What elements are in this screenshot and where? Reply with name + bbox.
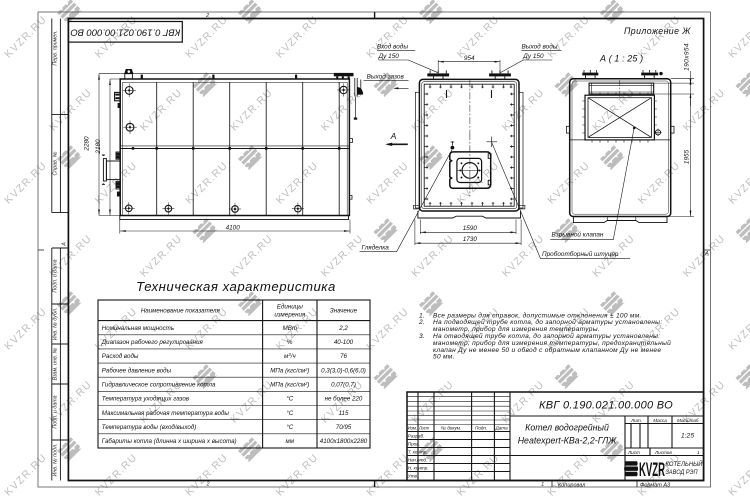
svg-text:1955: 1955 [683,149,690,164]
svg-text:А: А [62,242,68,247]
svg-text:2: 2 [205,13,209,19]
svg-text:Диапазон рабочего регулировани: Диапазон рабочего регулирования [101,339,204,346]
svg-text:мм: мм [286,438,295,445]
svg-text:Справ. №: Справ. № [53,151,59,175]
svg-text:не более 220: не более 220 [325,396,363,403]
svg-text:Ду 150: Ду 150 [378,53,400,60]
svg-text:Пробоотборный штуцер: Пробоотборный штуцер [542,250,619,258]
svg-text:Лит.: Лит. [630,418,642,423]
svg-text:%: % [287,339,293,346]
svg-text:На отводящей трубе котла, до з: На отводящей трубе котла, до запорной ар… [433,332,660,340]
svg-text:Ду 150: Ду 150 [522,53,544,60]
svg-text:2: 2 [205,482,209,488]
svg-text:115: 115 [339,410,349,417]
svg-text:Выход газов: Выход газов [367,72,405,80]
svg-text:КОТЕЛЬНЫЙ: КОТЕЛЬНЫЙ [666,459,703,468]
svg-text:клапан Ду не менее 50 и обвод: клапан Ду не менее 50 и обвод с обратным… [433,346,661,354]
svg-text:Взрывной клапан: Взрывной клапан [552,231,604,239]
svg-text:Подп.: Подп. [475,426,487,431]
svg-text:Все размеры для справок, допус: Все размеры для справок, допустимые откл… [433,311,642,319]
svg-text:KVZR: KVZR [639,459,665,481]
svg-text:4100х1800х2280: 4100х1800х2280 [320,438,368,445]
svg-text:Разраб.: Разраб. [408,434,425,439]
svg-text:0,3(3,0)-0,6(6,0): 0,3(3,0)-0,6(6,0) [321,367,366,374]
svg-text:Инв. № дубл.: Инв. № дубл. [53,308,59,341]
svg-text:Гидравлическое сопротивление к: Гидравлическое сопротивление котла [102,382,216,389]
svg-text:Значение: Значение [330,308,358,315]
svg-text:1:25: 1:25 [681,433,694,440]
svg-text:190х954: 190х954 [683,43,690,71]
svg-text:1: 1 [541,482,544,488]
svg-text:Формат А3: Формат А3 [640,483,671,489]
svg-text:2,2: 2,2 [338,325,348,332]
svg-text:Нач.отд.: Нач.отд. [408,458,427,463]
svg-text:Единицы: Единицы [277,304,303,311]
svg-text:954: 954 [464,55,475,62]
svg-text:МПа (кгс/см²): МПа (кгс/см²) [270,382,309,389]
svg-text:Лист: Лист [418,426,429,431]
svg-text:м3/ч: м3/ч [284,352,296,360]
svg-text:3.: 3. [419,333,425,340]
svg-text:Гляделка: Гляделка [362,244,390,252]
svg-text:КВГ 0.190.021.00.000 ВО: КВГ 0.190.021.00.000 ВО [539,400,673,412]
svg-text:Расход воды: Расход воды [102,353,139,360]
svg-text:Номинальная мощность: Номинальная мощность [102,325,174,332]
svg-text:Копировал: Копировал [558,483,585,489]
svg-text:Подп. и дата: Подп. и дата [53,259,59,292]
svg-text:МВт: МВт [283,325,297,332]
svg-text:Масса: Масса [653,418,667,423]
svg-text:Взам. инв. №: Взам. инв. № [53,347,59,380]
svg-text:Дата: Дата [495,426,509,431]
svg-text:Н. контр.: Н. контр. [408,466,429,471]
svg-text:Выход воды: Выход воды [522,42,558,50]
svg-text:На подводящей трубе котла, до: На подводящей трубе котла, до запорной а… [433,318,662,326]
svg-text:2180: 2180 [95,139,102,155]
svg-text:1590: 1590 [463,225,478,232]
svg-text:Максимальная рабочая температу: Максимальная рабочая температура воды [102,410,230,417]
svg-text:А ( 1 : 25 ): А ( 1 : 25 ) [599,54,643,64]
svg-text:А: А [390,131,397,141]
svg-text:Котел водогрейный: Котел водогрейный [525,423,609,433]
svg-text:70/95: 70/95 [336,424,352,431]
svg-text:Температура воды (вход/выход): Температура воды (вход/выход) [102,424,196,431]
svg-text:76: 76 [340,353,347,360]
svg-text:1: 1 [697,450,700,455]
svg-text:ЗАВОД РЭП: ЗАВОД РЭП [666,469,698,476]
svg-text:Heatexpert-КВа-2,2-ГЛЖ: Heatexpert-КВа-2,2-ГЛЖ [518,436,618,446]
svg-text:2280: 2280 [84,136,91,152]
svg-text:манометр, прибор для измерения: манометр, прибор для измерения температу… [433,339,671,347]
svg-text:0,07(0,7): 0,07(0,7) [331,382,356,389]
svg-text:40-100: 40-100 [334,339,354,346]
svg-text:Т. контр.: Т. контр. [408,450,428,455]
svg-text:°С: °С [286,410,293,417]
svg-text:1730: 1730 [463,236,478,243]
svg-text:измерения: измерения [274,312,306,319]
svg-text:4100: 4100 [226,224,241,231]
svg-text:Масштаб: Масштаб [677,418,699,423]
svg-text:Приложение Ж: Приложение Ж [624,26,691,36]
svg-text:Габариты котла (длинна х ширин: Габариты котла (длинна х ширина х высота… [102,438,237,445]
svg-text:Лист: Лист [627,450,640,455]
svg-text:А: А [704,251,709,257]
svg-text:Изм.: Изм. [408,426,418,431]
svg-text:Пров.: Пров. [408,442,420,447]
svg-text:КВГ 0.190.021.00.000 ВО: КВГ 0.190.021.00.000 ВО [70,26,180,37]
svg-text:№ докум.: № докум. [441,426,461,431]
svg-text:Подп. и дата: Подп. и дата [53,395,59,428]
svg-text:манометр, прибор для измерения: манометр, прибор для измерения температу… [433,325,600,333]
svg-text:Инв. № подл.: Инв. № подл. [53,444,59,477]
svg-text:Рабочее давление воды: Рабочее давление воды [102,367,172,374]
svg-text:Техническая характеристика: Техническая характеристика [136,279,336,294]
svg-text:2.: 2. [418,319,425,326]
svg-text:50 мм.: 50 мм. [433,354,455,361]
svg-text:Листов: Листов [654,450,672,455]
svg-text:°С: °С [286,424,293,431]
svg-text:Утв.: Утв. [408,474,418,479]
svg-text:Перв. примен.: Перв. примен. [53,30,59,65]
svg-text:Температура уходящих газов: Температура уходящих газов [102,396,190,403]
svg-text:МПа (кгс/см²): МПа (кгс/см²) [270,367,309,374]
svg-text:°С: °С [286,396,293,403]
svg-text:Вход воды: Вход воды [377,42,408,50]
svg-text:Наименование показателя: Наименование показателя [141,308,221,315]
